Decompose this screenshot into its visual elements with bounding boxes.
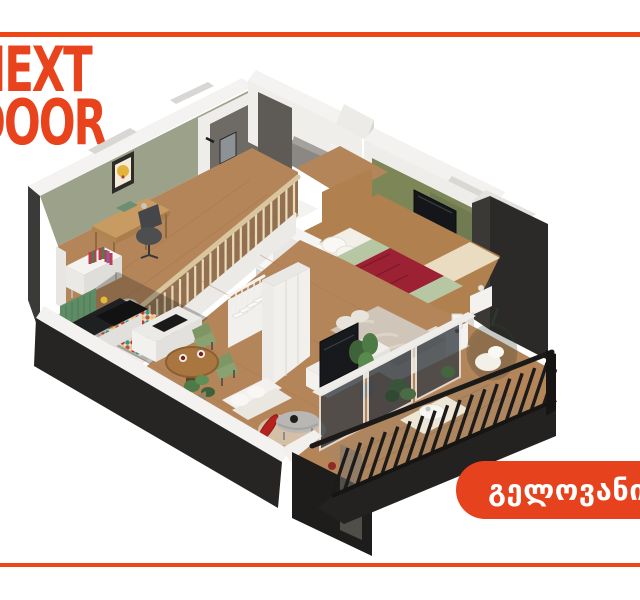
location-button-label: გელოვანი xyxy=(488,473,640,507)
outdoor-chair xyxy=(328,462,336,470)
wall-corner xyxy=(56,246,66,310)
kettle xyxy=(101,297,108,304)
location-button[interactable]: გელოვანი xyxy=(456,461,640,519)
